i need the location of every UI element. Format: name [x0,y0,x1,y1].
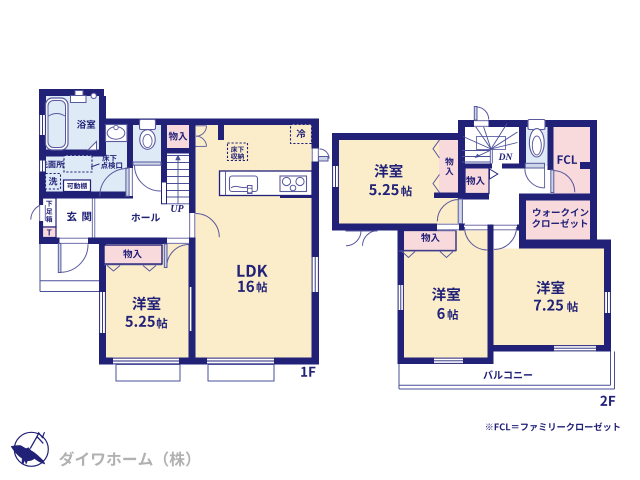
svg-text:UP: UP [170,204,184,215]
svg-text:DN: DN [498,153,514,163]
svg-text:T: T [47,229,52,238]
